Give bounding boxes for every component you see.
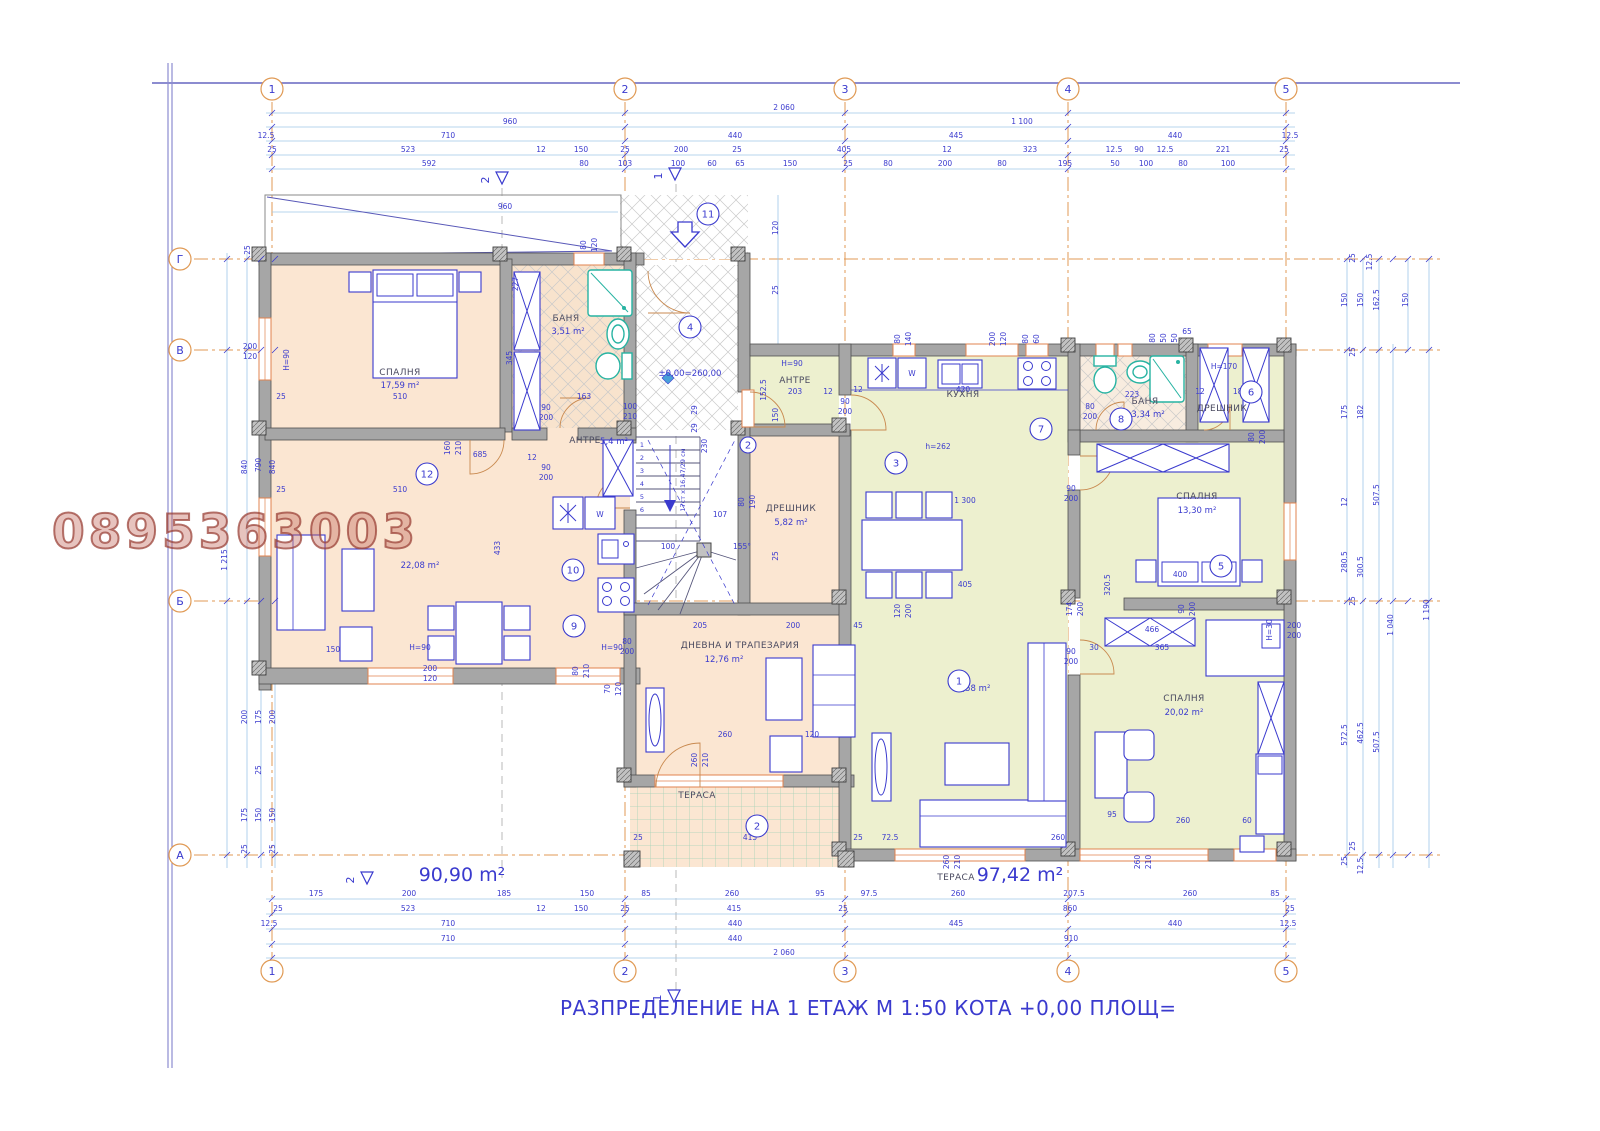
dim-label: 150 xyxy=(1356,293,1365,308)
dim-label: 80 xyxy=(997,159,1007,168)
right-unit-area: 97,42 m² xyxy=(977,864,1064,886)
dim-label: 200 xyxy=(539,413,554,422)
dim-label: 50 xyxy=(1110,159,1120,168)
dim-label: 182 xyxy=(1356,405,1365,420)
dim-label: 466 xyxy=(1145,625,1160,634)
dim-label: 100 xyxy=(661,542,676,551)
dim-label: 462.5 xyxy=(1356,722,1365,744)
room-banya1-area: 3,51 m² xyxy=(551,327,584,337)
room-terasa1-name: ТЕРАСА xyxy=(677,791,716,801)
room-dnevna-area: 12,76 m² xyxy=(705,655,744,665)
dim-label: 200 xyxy=(904,604,913,619)
section-marker-number: 2 xyxy=(344,877,357,884)
dim-label: 200 xyxy=(620,647,635,656)
dim-label: 72.5 xyxy=(882,833,899,842)
dim-label: 200 xyxy=(674,145,689,154)
dim-label: 25 xyxy=(1340,856,1349,866)
dim-label: 190 xyxy=(748,495,757,510)
dim-label: 300.5 xyxy=(1356,556,1365,578)
room-dreshnik1-name: ДРЕШНИК xyxy=(766,504,817,514)
dim-label: Б xyxy=(176,595,184,608)
dim-label: 207.5 xyxy=(1063,889,1085,898)
dim-label: 90 xyxy=(1066,484,1076,493)
dim-label: 175 xyxy=(1340,405,1349,420)
dim-label: 163 xyxy=(577,392,592,401)
dim-label: 440 xyxy=(728,919,743,928)
dim-label: 12.5 xyxy=(258,131,275,140)
dim-label: 445 xyxy=(949,919,964,928)
dim-label: 80 xyxy=(1247,432,1256,442)
dim-label: 11 xyxy=(702,210,715,221)
dim-label: 260 xyxy=(1051,833,1066,842)
dim-label: 85 xyxy=(641,889,651,898)
dim-label: 25 xyxy=(268,844,277,854)
dim-label: 80 xyxy=(1085,402,1095,411)
dim-label: 200 xyxy=(838,407,853,416)
dim-label: В xyxy=(176,344,184,357)
dim-label: 150 xyxy=(1340,293,1349,308)
dim-label: 1 xyxy=(640,441,644,449)
dim-label: 960 xyxy=(503,117,518,126)
dim-label: 4 xyxy=(687,323,693,334)
dim-label: 50 xyxy=(1159,333,1168,343)
dim-label: 9 xyxy=(571,622,577,633)
dim-label: 260 xyxy=(951,889,966,898)
dim-label: 90 xyxy=(1177,604,1186,614)
dim-label: 120 xyxy=(423,674,438,683)
dim-label: 280.5 xyxy=(1340,551,1349,573)
dim-label: 150 xyxy=(1401,293,1410,308)
dim-label: 12 xyxy=(527,453,537,462)
room-banya1-name: БАНЯ xyxy=(553,314,580,324)
level-mark-label: ±0,00=260,00 xyxy=(659,369,722,379)
room-antre1-area: 5,4 m² xyxy=(600,437,628,447)
dim-label: 25 xyxy=(267,145,277,154)
dim-label: 960 xyxy=(498,202,513,211)
dim-label: 155° xyxy=(733,542,751,551)
phone-watermark: 0895363003 xyxy=(52,505,419,560)
dim-label: 25 xyxy=(1348,596,1357,606)
dim-label: 12.5 xyxy=(1356,857,1365,874)
dim-label: H=90 xyxy=(409,643,431,652)
dim-label: 50 xyxy=(1170,333,1179,343)
room-spalnya2-name: СПАЛНЯ xyxy=(1176,492,1217,502)
dim-label: 1 300 xyxy=(954,496,976,505)
dim-label: 5 xyxy=(1283,965,1290,978)
dim-label: 6 xyxy=(640,506,644,514)
dim-label: Г xyxy=(177,253,184,266)
dim-label: 203 xyxy=(788,387,803,396)
floor-plan-sheet: 123456 xyxy=(0,0,1600,1131)
dim-label: 25 xyxy=(276,392,286,401)
dim-label: 25 xyxy=(620,145,630,154)
dim-label: 840 xyxy=(240,460,249,475)
dim-label: 120 xyxy=(771,221,780,236)
dim-label: 152.5 xyxy=(759,379,768,401)
dim-label: 25 xyxy=(1279,145,1289,154)
dim-label: 12.5 xyxy=(1106,145,1123,154)
dim-label: 100 xyxy=(623,402,638,411)
sink-icon xyxy=(607,319,629,349)
dim-label: 100 xyxy=(671,159,686,168)
dim-label: 510 xyxy=(393,485,408,494)
dim-label: 260 xyxy=(1176,816,1191,825)
toilet-icon xyxy=(596,353,632,379)
dim-label: 510 xyxy=(393,392,408,401)
dim-label: 25 xyxy=(254,765,263,775)
dim-label: 30 xyxy=(1089,643,1099,652)
dim-label: 572.5 xyxy=(1340,724,1349,746)
dim-label: 12 xyxy=(1340,497,1349,507)
dim-label: 200 xyxy=(268,710,277,725)
dim-label: 25 xyxy=(633,833,643,842)
dim-label: 1 xyxy=(956,677,962,688)
dim-label: 25 xyxy=(838,904,848,913)
dim-label: 162.5 xyxy=(1372,289,1381,311)
dim-label: 80 xyxy=(737,497,746,507)
dim-label: 910 xyxy=(1064,934,1079,943)
dim-label: 12 xyxy=(942,145,952,154)
dim-label: 200 xyxy=(1064,494,1079,503)
dim-label: 90 xyxy=(1066,647,1076,656)
dim-label: 2 xyxy=(745,441,751,452)
right-terrace-label: ТЕРАСА xyxy=(936,873,975,883)
dim-label: 12 xyxy=(536,904,546,913)
dim-label: 90 xyxy=(541,463,551,472)
dim-label: 507.5 xyxy=(1372,484,1381,506)
dim-label: 860 xyxy=(1063,904,1078,913)
dim-label: 25 xyxy=(273,904,283,913)
shower-icon xyxy=(1150,356,1184,402)
dim-label: 3 xyxy=(640,467,644,475)
dim-label: 523 xyxy=(401,904,416,913)
dim-label: 365 xyxy=(1155,643,1170,652)
dim-label: 25 xyxy=(1348,347,1357,357)
dim-label: 210 xyxy=(1144,855,1153,870)
dim-label: 80 xyxy=(883,159,893,168)
room-banya2-name: БАНЯ xyxy=(1132,397,1159,407)
dim-label: 221 xyxy=(1216,145,1231,154)
stairs-note: 17ст x 16,47/29 см xyxy=(679,448,687,511)
dim-label: 150 xyxy=(268,808,277,823)
dim-label: 12.5 xyxy=(1280,919,1297,928)
dim-label: 440 xyxy=(728,131,743,140)
dim-label: 65 xyxy=(735,159,745,168)
dim-label: 12.5 xyxy=(1282,131,1299,140)
dim-label: 200 xyxy=(243,342,258,351)
dim-label: 80 xyxy=(579,240,588,250)
dim-label: 150 xyxy=(254,808,263,823)
dim-label: 230 xyxy=(700,439,709,454)
dim-label: 3 xyxy=(842,965,849,978)
dim-label: 200 xyxy=(1188,602,1197,617)
dim-label: 2 060 xyxy=(773,948,795,957)
dim-label: 120 xyxy=(805,730,820,739)
dim-label: 80 xyxy=(571,666,580,676)
dim-label: 710 xyxy=(441,934,456,943)
section-marker-number: 2 xyxy=(479,177,492,184)
dim-label: 25 xyxy=(843,159,853,168)
dim-label: 90 xyxy=(541,403,551,412)
dim-label: 260 xyxy=(690,753,699,768)
dim-label: W xyxy=(596,510,604,519)
dim-label: 4 xyxy=(1065,83,1072,96)
dim-label: 60 xyxy=(1242,816,1252,825)
dim-label: 200 xyxy=(423,664,438,673)
dim-label: 840 xyxy=(268,460,277,475)
dim-label: 7 xyxy=(1038,425,1044,436)
dim-label: 400 xyxy=(1173,570,1188,579)
dim-label: 150 xyxy=(580,889,595,898)
room-living1-area: 22,08 m² xyxy=(401,561,440,571)
dim-label: 1 190 xyxy=(1422,599,1431,621)
dim-label: 3 xyxy=(842,83,849,96)
dim-label: 200 xyxy=(539,473,554,482)
plan-drawing: 123456 xyxy=(0,0,1600,1131)
dim-label: 103 xyxy=(618,159,633,168)
dim-label: 12.5 xyxy=(1157,145,1174,154)
dim-label: 260 xyxy=(718,730,733,739)
dim-label: 200 xyxy=(1064,657,1079,666)
dim-label: 205 xyxy=(693,621,708,630)
dim-label: 120 xyxy=(614,682,623,697)
room-dreshnik1-area: 5,82 m² xyxy=(774,518,807,528)
dim-label: 10 xyxy=(567,566,580,577)
dim-label: 3 xyxy=(893,459,899,470)
dim-label: 200 xyxy=(1258,430,1267,445)
dim-label: 12 xyxy=(823,387,833,396)
dim-label: 200 xyxy=(1287,631,1302,640)
dim-label: 440 xyxy=(728,934,743,943)
dim-label: 195 xyxy=(1058,159,1073,168)
dim-label: 200 xyxy=(988,332,997,347)
dim-label: 523 xyxy=(401,145,416,154)
dim-label: 440 xyxy=(1168,131,1183,140)
dim-label: 200 xyxy=(938,159,953,168)
room-spalnya1-area: 17,59 m² xyxy=(381,381,420,391)
dim-label: H=30 xyxy=(1265,619,1274,641)
dim-label: 227 xyxy=(511,277,520,292)
dim-label: 140 xyxy=(904,332,913,347)
dim-label: 175 xyxy=(309,889,324,898)
dim-label: 6 xyxy=(1248,388,1254,399)
dim-label: 107 xyxy=(713,510,728,519)
dim-label: H=90 xyxy=(282,349,291,371)
dim-label: 25 xyxy=(1348,253,1357,263)
dim-label: 150 xyxy=(574,145,589,154)
dim-label: 95 xyxy=(1107,810,1117,819)
dim-label: 433 xyxy=(493,541,502,556)
room-spalnya1-name: СПАЛНЯ xyxy=(379,368,420,378)
dim-label: 25 xyxy=(732,145,742,154)
dim-label: 25 xyxy=(620,904,630,913)
dim-label: 12 xyxy=(536,145,546,154)
dim-label: 60 xyxy=(707,159,717,168)
dim-label: 345 xyxy=(505,351,514,366)
dim-label: 1 040 xyxy=(1386,614,1395,636)
dim-label: 210 xyxy=(701,753,710,768)
dim-label: 2 060 xyxy=(773,103,795,112)
dim-label: 405 xyxy=(837,145,852,154)
dim-label: 97.5 xyxy=(861,889,878,898)
dim-label: 12 xyxy=(853,385,863,394)
dim-label: 2 xyxy=(754,822,760,833)
dim-label: 12 xyxy=(1195,387,1205,396)
dim-label: 200 xyxy=(1083,412,1098,421)
dim-label: 260 xyxy=(1183,889,1198,898)
dim-label: 80 xyxy=(622,637,632,646)
dim-label: 1 100 xyxy=(1011,117,1033,126)
dim-label: 80 xyxy=(1021,334,1030,344)
dim-label: 2 xyxy=(622,83,629,96)
dim-label: 5 xyxy=(1218,562,1224,573)
dim-label: 8 xyxy=(1118,415,1124,426)
dim-label: 25 xyxy=(853,833,863,842)
dim-label: А xyxy=(176,849,184,862)
room-spalnya3-name: СПАЛНЯ xyxy=(1163,694,1204,704)
dim-label: 60 xyxy=(1032,334,1041,344)
dim-label: h=262 xyxy=(925,442,951,451)
dim-label: 200 xyxy=(786,621,801,630)
section-marker-triangle xyxy=(361,872,373,884)
dim-label: 45 xyxy=(853,621,863,630)
dim-label: 210 xyxy=(953,855,962,870)
dim-label: 210 xyxy=(454,441,463,456)
shower-icon xyxy=(588,270,632,316)
dim-label: 323 xyxy=(1023,145,1038,154)
dim-label: 120 xyxy=(590,238,599,253)
dim-label: 90 xyxy=(1134,145,1144,154)
dim-label: 120 xyxy=(243,352,258,361)
dim-label: H=90 xyxy=(781,359,803,368)
dim-label: 320.5 xyxy=(1103,574,1112,596)
dim-label: 25 xyxy=(771,285,780,295)
dim-label: 80 xyxy=(1178,159,1188,168)
dim-label: 90 xyxy=(840,397,850,406)
dim-label: 120 xyxy=(999,332,1008,347)
dim-label: 4 xyxy=(1065,965,1072,978)
left-unit-area: 90,90 m² xyxy=(419,864,506,886)
dim-label: 405 xyxy=(958,580,973,589)
dim-label: 710 xyxy=(441,131,456,140)
dim-label: 415 xyxy=(727,904,742,913)
dim-label: 25 xyxy=(240,844,249,854)
dim-label: 100 xyxy=(1139,159,1154,168)
dim-label: 175 xyxy=(254,710,263,725)
dim-label: 25 xyxy=(1285,904,1295,913)
dim-label: 25 xyxy=(276,485,286,494)
section-marker-triangle xyxy=(496,172,508,184)
dim-label: 150 xyxy=(574,904,589,913)
dim-label: 210 xyxy=(582,664,591,679)
dim-label: 710 xyxy=(441,919,456,928)
room-dnevna-name: ДНЕВНА И ТРАПЕЗАРИЯ xyxy=(681,641,800,651)
drawing-title: РАЗПРЕДЕЛЕНИЕ НА 1 ЕТАЖ М 1:50 КОТА +0,0… xyxy=(560,996,1177,1020)
dim-label: 200 xyxy=(1287,621,1302,630)
dim-label: 150 xyxy=(326,645,341,654)
dim-label: 120 xyxy=(893,604,902,619)
dim-label: 507.5 xyxy=(1372,731,1381,753)
dim-label: 260 xyxy=(725,889,740,898)
dim-label: 12 xyxy=(421,470,434,481)
dim-label: 440 xyxy=(1168,919,1183,928)
room-banya2-area: 3,34 m² xyxy=(1131,410,1164,420)
dim-label: 2 xyxy=(622,965,629,978)
dim-label: 80 xyxy=(893,334,902,344)
roof-canopy xyxy=(265,195,621,259)
dim-label: 95 xyxy=(815,889,825,898)
dim-label: 25 xyxy=(243,245,252,255)
dim-label: 260 xyxy=(942,855,951,870)
dim-label: 160 xyxy=(443,441,452,456)
dim-label: 200 xyxy=(240,710,249,725)
dim-label: 175 xyxy=(240,808,249,823)
toilet-icon xyxy=(1094,356,1116,393)
dim-label: 12.5 xyxy=(261,919,278,928)
dim-label: 260 xyxy=(1133,855,1142,870)
dim-label: 174 xyxy=(1065,602,1074,617)
dim-label: 685 xyxy=(473,450,488,459)
section-marker-number: 1 xyxy=(652,173,665,180)
dim-label: 29 xyxy=(690,405,699,415)
dim-label: 592 xyxy=(422,159,437,168)
room-spalnya2-area: 13,30 m² xyxy=(1178,506,1217,516)
dim-label: 185 xyxy=(497,889,512,898)
dim-label: 1 xyxy=(269,965,276,978)
dim-label: 25 xyxy=(1348,841,1357,851)
dim-label: 80 xyxy=(1148,333,1157,343)
dim-label: 150 xyxy=(783,159,798,168)
dim-label: 80 xyxy=(579,159,589,168)
room-dreshnik2-name: ДРЕШНИК xyxy=(1197,404,1248,414)
dim-label: H=170 xyxy=(1211,362,1237,371)
dim-label: 150 xyxy=(771,408,780,423)
sink-icon xyxy=(1127,361,1153,383)
dim-label: 65 xyxy=(1182,327,1192,336)
room-antre2-name: АНТРЕ xyxy=(779,376,811,386)
dim-label: 5 xyxy=(640,493,644,501)
dim-label: 25 xyxy=(771,551,780,561)
dim-label: 200 xyxy=(1076,602,1085,617)
dim-label: 210 xyxy=(623,412,638,421)
dim-label: 100 xyxy=(1221,159,1236,168)
dim-label: W xyxy=(908,369,916,378)
dim-label: 790 xyxy=(254,458,263,473)
dim-label: 29 xyxy=(690,423,699,433)
dim-label: 200 xyxy=(402,889,417,898)
dim-label: 70 xyxy=(603,684,612,694)
dim-label: 2 xyxy=(640,454,644,462)
dim-label: 12.5 xyxy=(1365,253,1374,270)
room-antre1-name: АНТРЕ xyxy=(569,436,601,446)
dim-label: 4 xyxy=(640,480,644,488)
room-kuhnya-name: КУХНЯ xyxy=(946,390,979,400)
dim-label: 1 xyxy=(269,83,276,96)
dim-label: 445 xyxy=(949,131,964,140)
dim-label: 5 xyxy=(1283,83,1290,96)
section-marker-triangle xyxy=(669,168,681,180)
room-spalnya3-area: 20,02 m² xyxy=(1165,708,1204,718)
dim-label: 85 xyxy=(1270,889,1280,898)
